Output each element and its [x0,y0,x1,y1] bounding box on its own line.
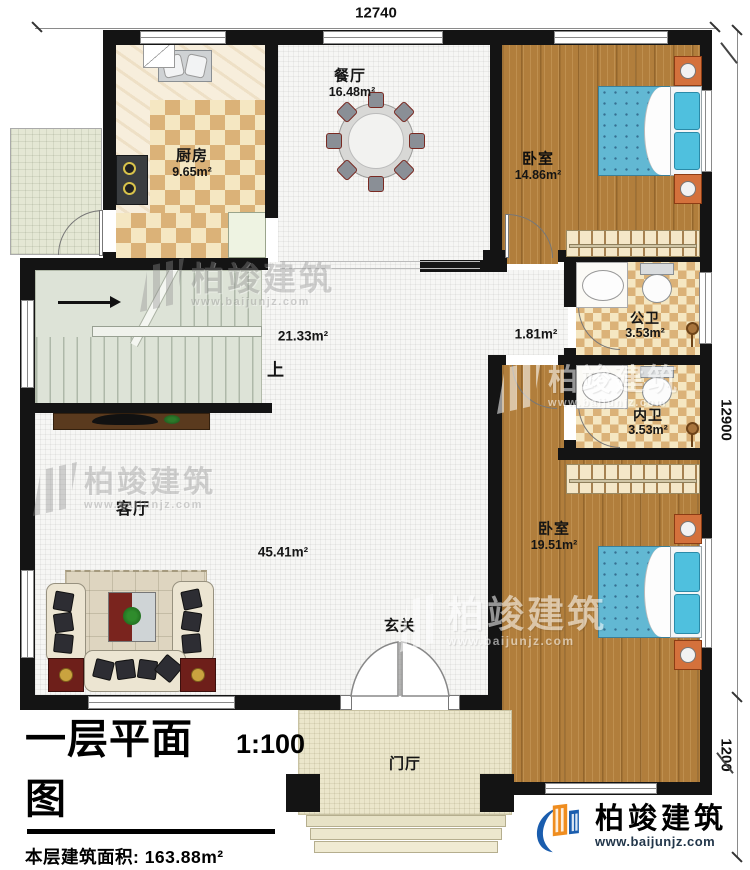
living-area-label: 45.41m² [258,545,308,560]
deck-door-leaf [99,210,103,256]
stairs-arrow-icon [110,296,121,308]
public-bath-sink [582,270,624,301]
side-table-left-ornament [59,668,73,682]
brand-name: 柏竣建筑 [595,805,727,834]
bedroom2-pillow-bottom [674,594,700,634]
window-bedroom2-bottom [545,783,657,794]
drawing-scale: 1:100 [236,729,305,760]
bedroom2-pillow-top [674,552,700,592]
kitchen-fridge [228,212,266,258]
bedroom1-pillow-bottom [674,132,700,170]
bedroom2-bed-sheet [644,547,673,637]
bedroom1-label: 卧室 [522,148,554,169]
sofa-cushion [53,633,74,654]
stove-burner-top [123,162,136,175]
wall-privatebath-bottom [558,448,712,460]
bedroom1-nightstand-top [674,56,702,86]
sofa-cushion [181,633,202,654]
bedroom2-nightstand-bottom [674,640,702,670]
wall-bath-left-upper [564,262,576,307]
wall-living-bottom-right [460,695,488,710]
dim-line-top [35,28,718,29]
bedroom1-pillow-top [674,92,700,130]
sofa-cushion [115,659,136,680]
sofa-cushion [181,611,203,633]
sofa-cushion [180,588,203,611]
porch-label: 门厅 [389,753,421,774]
title-block: 一层平面图 1:100 本层建筑面积: 163.88m² 本栋建筑面积: 297… [25,705,305,870]
bedroom1-area: 14.86m² [515,168,562,182]
window-kitchen-top [140,31,226,44]
wall-kitchen-dining [265,30,278,218]
entry-double-door [348,640,452,698]
dining-chair [409,133,425,149]
dining-table-top [348,113,404,169]
dim-top-value: 12740 [355,5,397,22]
kitchen-area: 9.65m² [172,165,212,179]
window-stairs-left [21,300,34,388]
kitchen-label: 厨房 [176,145,208,166]
porch-step-1 [306,815,506,827]
stairs-railing [92,326,262,337]
coffee-table-plant-icon [123,607,141,625]
dining-hall-track [280,261,480,269]
stairs-up-label: 上 [267,356,285,381]
dining-area: 16.48m² [329,85,376,99]
bedroom2-nightstand-top [674,514,702,544]
corridor-floor [488,270,568,355]
stat-floor-area: 本层建筑面积: 163.88m² [25,844,305,869]
dim-line-right-porch [737,698,738,858]
dining-chair [326,133,342,149]
porch-column-right [480,774,514,812]
brand-logo: 柏竣建筑 www.baijunjz.com [533,797,727,857]
private-bath-sink [582,372,624,403]
bedroom2-area: 19.51m² [531,538,578,552]
bedroom1-door-leaf [505,214,509,258]
floor-plan-canvas: 餐厅 16.48m² 厨房 9.65m² 卧室 14.86m² 21.33m² … [0,0,750,870]
side-table-right-ornament [191,668,205,682]
porch-step-3 [314,841,498,853]
dining-label: 餐厅 [334,65,366,86]
sofa-cushion [52,590,74,612]
sofa-cushion [53,612,74,633]
console-plant-icon [164,415,180,424]
public-bath-area: 3.53m² [625,326,665,340]
dim-tick [31,21,42,32]
living-label: 客厅 [116,495,150,519]
dim-leader-top-right [720,42,738,64]
private-bath-shower-stem [691,434,693,447]
dining-chair [368,176,384,192]
corridor-area-label: 1.81m² [515,327,558,342]
window-bath-right [699,272,712,344]
window-living-left [21,570,34,658]
foyer-label: 玄关 [384,615,416,636]
public-bath-shower-stem [691,334,693,347]
brand-logo-icon [533,797,587,857]
bedroom2-label: 卧室 [538,518,570,539]
public-bath-label: 公卫 [630,308,660,328]
window-bedroom1-top [554,31,668,44]
wall-corner-dining [483,250,507,272]
brand-url: www.baijunjz.com [595,834,727,849]
private-bath-area: 3.53m² [628,423,668,437]
stairs-lower-treads [36,337,261,403]
wall-bath-left-lower [564,365,576,405]
wall-under-kitchen [20,258,268,270]
stove-burner-bottom [123,182,136,195]
wall-bath-divider [558,355,712,365]
dim-right-main-value: 12900 [718,399,735,441]
hall-area-label: 21.33m² [278,329,328,344]
public-bath-toilet-bowl [642,274,672,303]
window-dining-top [323,31,443,44]
bedroom1-bed-sheet [644,87,673,175]
page-title: 一层平面图 [25,705,222,825]
tv-icon [92,414,158,425]
porch-step-2 [310,828,502,840]
wall-understairs [35,403,272,413]
wall-kitchen-left [103,30,116,210]
dim-line-right-main [737,30,738,698]
private-bath-label: 内卫 [633,405,663,425]
title-underline [27,829,275,834]
bedroom1-wardrobe [566,230,700,257]
stairs-upper-treads [180,271,261,333]
private-bath-toilet-bowl [642,377,672,406]
bedroom2-wardrobe [566,464,700,494]
wall-dining-bedroom1 [490,30,502,262]
wall-corridor-bottom-left [488,355,506,365]
bedroom1-nightstand-bottom [674,174,702,204]
stairs-direction-line [58,301,112,304]
